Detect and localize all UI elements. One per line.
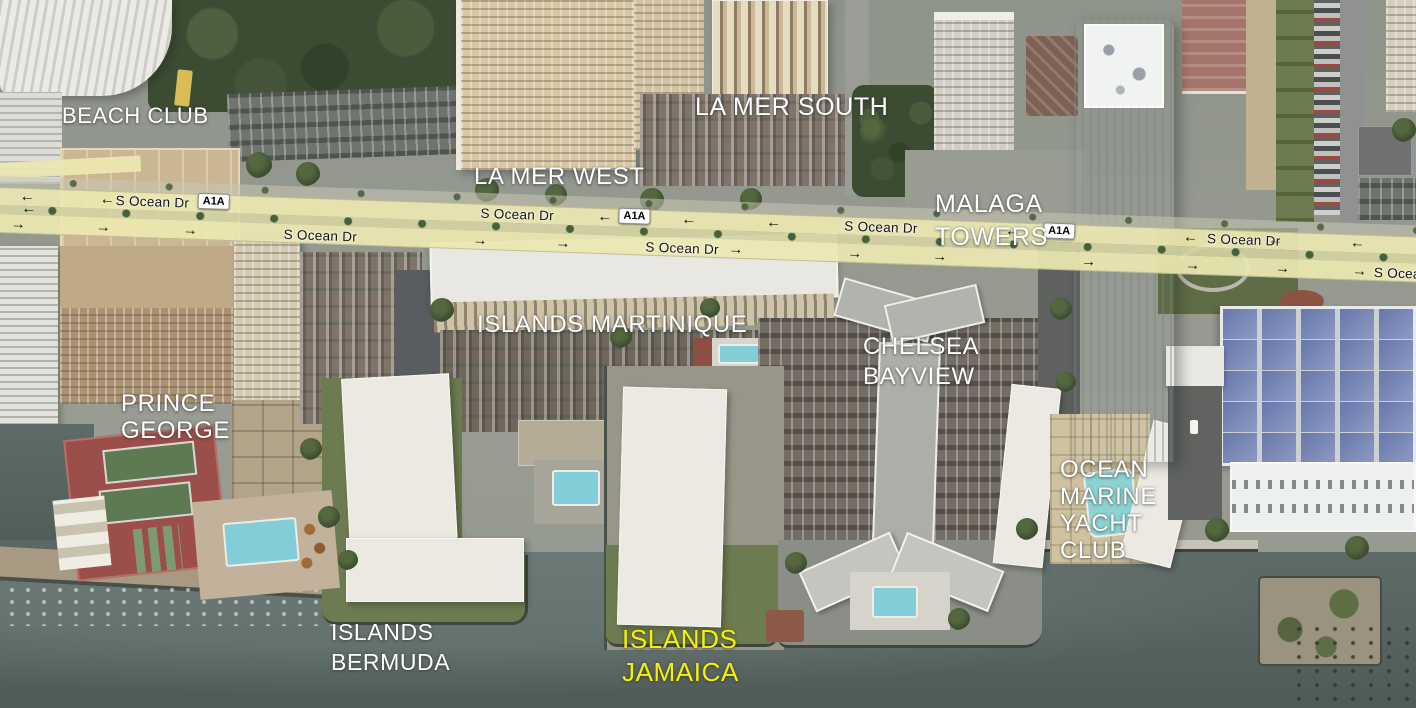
parking-lot — [227, 86, 461, 162]
tree — [338, 550, 358, 570]
swimming-pool — [718, 344, 760, 364]
marina-building-facade — [1230, 462, 1416, 532]
swimming-pool — [222, 517, 300, 567]
tree — [1392, 118, 1416, 142]
tree — [610, 326, 632, 348]
tree — [740, 188, 762, 210]
brown-roof-building — [1026, 36, 1078, 116]
tree — [1016, 518, 1038, 540]
ribbed-building-left — [0, 246, 58, 446]
tennis-court — [98, 481, 193, 524]
islands-bermuda-building — [346, 538, 524, 602]
driveway — [1168, 386, 1222, 520]
corner-building — [1386, 0, 1416, 112]
swimming-pool — [872, 586, 918, 618]
swimming-pool — [552, 470, 600, 506]
tree — [1345, 536, 1369, 560]
red-building — [1182, 0, 1246, 94]
park-path — [1176, 244, 1250, 292]
pavement — [905, 150, 1085, 228]
prince-george-facade — [60, 308, 236, 404]
tree — [475, 178, 499, 202]
tree — [700, 298, 720, 318]
tree — [1050, 298, 1072, 320]
footbridge — [1166, 346, 1224, 386]
la-mer-south-building — [712, 0, 828, 96]
parking-lot — [1358, 178, 1416, 220]
prince-george-roof — [60, 148, 240, 248]
tree — [1056, 372, 1076, 392]
tree — [296, 162, 320, 186]
tennis-court — [102, 441, 197, 484]
tree — [1160, 252, 1182, 274]
tree — [545, 184, 567, 206]
chelsea-bayview-building — [795, 288, 1010, 618]
tree — [785, 552, 807, 574]
shuffleboard-courts — [133, 525, 183, 574]
tiki-dock — [766, 610, 804, 642]
tree — [860, 118, 888, 146]
prince-george-mid — [60, 246, 240, 310]
white-tower-rooftop — [1084, 24, 1164, 108]
dirt-lot — [1246, 0, 1276, 190]
pilings — [1290, 622, 1416, 702]
marina-building-roof — [1220, 306, 1416, 466]
tree — [246, 152, 272, 178]
cabana-awnings — [52, 495, 111, 570]
tree — [1205, 518, 1229, 542]
tree — [318, 506, 340, 528]
tree — [640, 188, 664, 212]
beach-club-annex — [0, 92, 62, 184]
islands-jamaica-building — [617, 387, 727, 628]
white-van — [1190, 420, 1198, 434]
tree — [300, 438, 322, 460]
aerial-photo — [0, 0, 1416, 708]
tree — [948, 608, 970, 630]
tree — [430, 298, 454, 322]
parking-lot — [640, 94, 880, 186]
la-mer-west-building — [456, 0, 636, 170]
aerial-map: ←←←←←←←←←←→→→→→→→→→→→→ S Ocean DrS Ocean… — [0, 0, 1416, 708]
lawn-strip — [1276, 0, 1314, 222]
parked-car-row — [1314, 0, 1340, 215]
